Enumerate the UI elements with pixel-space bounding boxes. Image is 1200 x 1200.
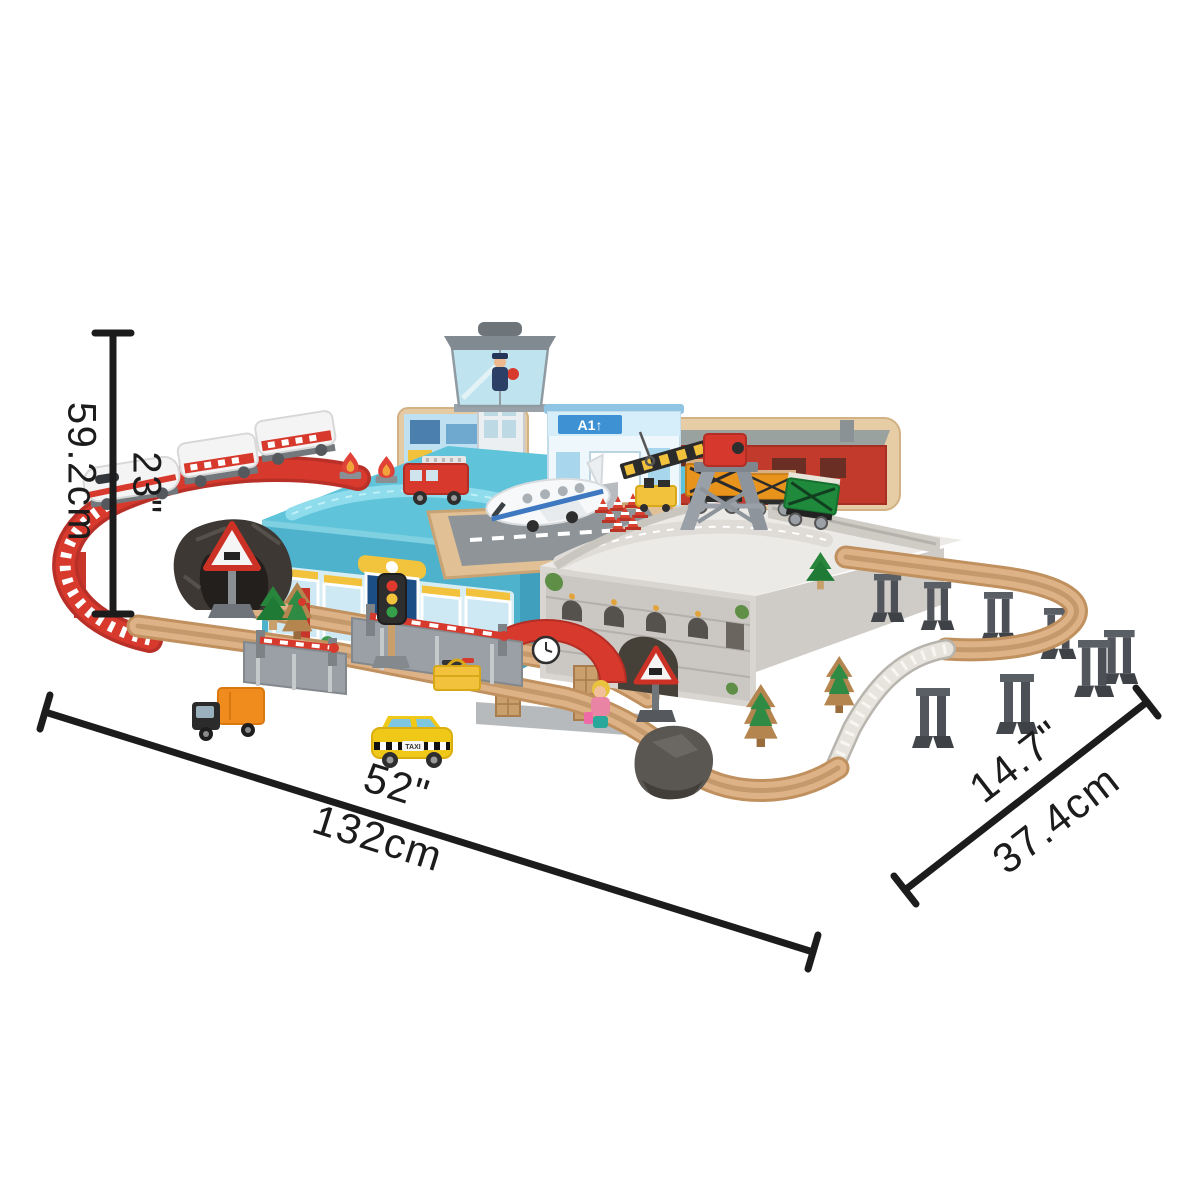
rock-portal	[635, 726, 713, 800]
factory-roof	[656, 430, 890, 446]
length-metric-label: 132cm	[307, 795, 449, 880]
red-light	[387, 581, 398, 592]
crane-cab-window	[732, 442, 744, 454]
product-dimension-illustration: A1↑	[0, 0, 1200, 1200]
castle-window	[726, 622, 744, 650]
police-cap	[492, 353, 508, 359]
height-imperial-label: 23"	[124, 451, 168, 514]
tree-berry	[298, 598, 306, 606]
tower-roof	[444, 336, 556, 350]
bag	[584, 712, 593, 724]
legs	[593, 716, 608, 728]
torso	[591, 697, 610, 716]
tools	[658, 480, 670, 487]
girder-bridge	[836, 649, 946, 764]
tools	[644, 478, 654, 488]
truck-container	[218, 688, 264, 724]
trestle	[981, 592, 1017, 643]
base	[372, 656, 410, 668]
taxi-label: TAXI	[405, 744, 420, 751]
post	[388, 624, 395, 656]
flame-marker	[376, 456, 398, 483]
wheel	[789, 513, 803, 527]
terminal-window	[556, 452, 580, 482]
wheel	[662, 504, 670, 512]
cab-window	[426, 470, 438, 481]
barrier-post	[256, 630, 265, 658]
signal-paddle	[507, 368, 519, 380]
green-light	[387, 607, 398, 618]
factory-chimney	[840, 420, 854, 442]
truck-window	[196, 706, 214, 718]
height-metric-label: 59.2cm	[59, 402, 103, 542]
wheel	[814, 516, 828, 530]
cab-window	[410, 470, 422, 481]
wooden-tree-right	[824, 656, 854, 713]
yellow-light	[387, 594, 398, 605]
tower-roof-cap	[478, 322, 522, 336]
length-imperial-label: 52"	[358, 753, 435, 818]
terminal-sign-label: A1↑	[578, 417, 603, 433]
face	[594, 686, 606, 698]
wheel	[640, 504, 648, 512]
delivery-truck	[192, 688, 264, 741]
trestle	[912, 688, 954, 748]
flame-marker	[340, 452, 362, 479]
scene-canvas: A1↑	[0, 0, 1200, 1200]
